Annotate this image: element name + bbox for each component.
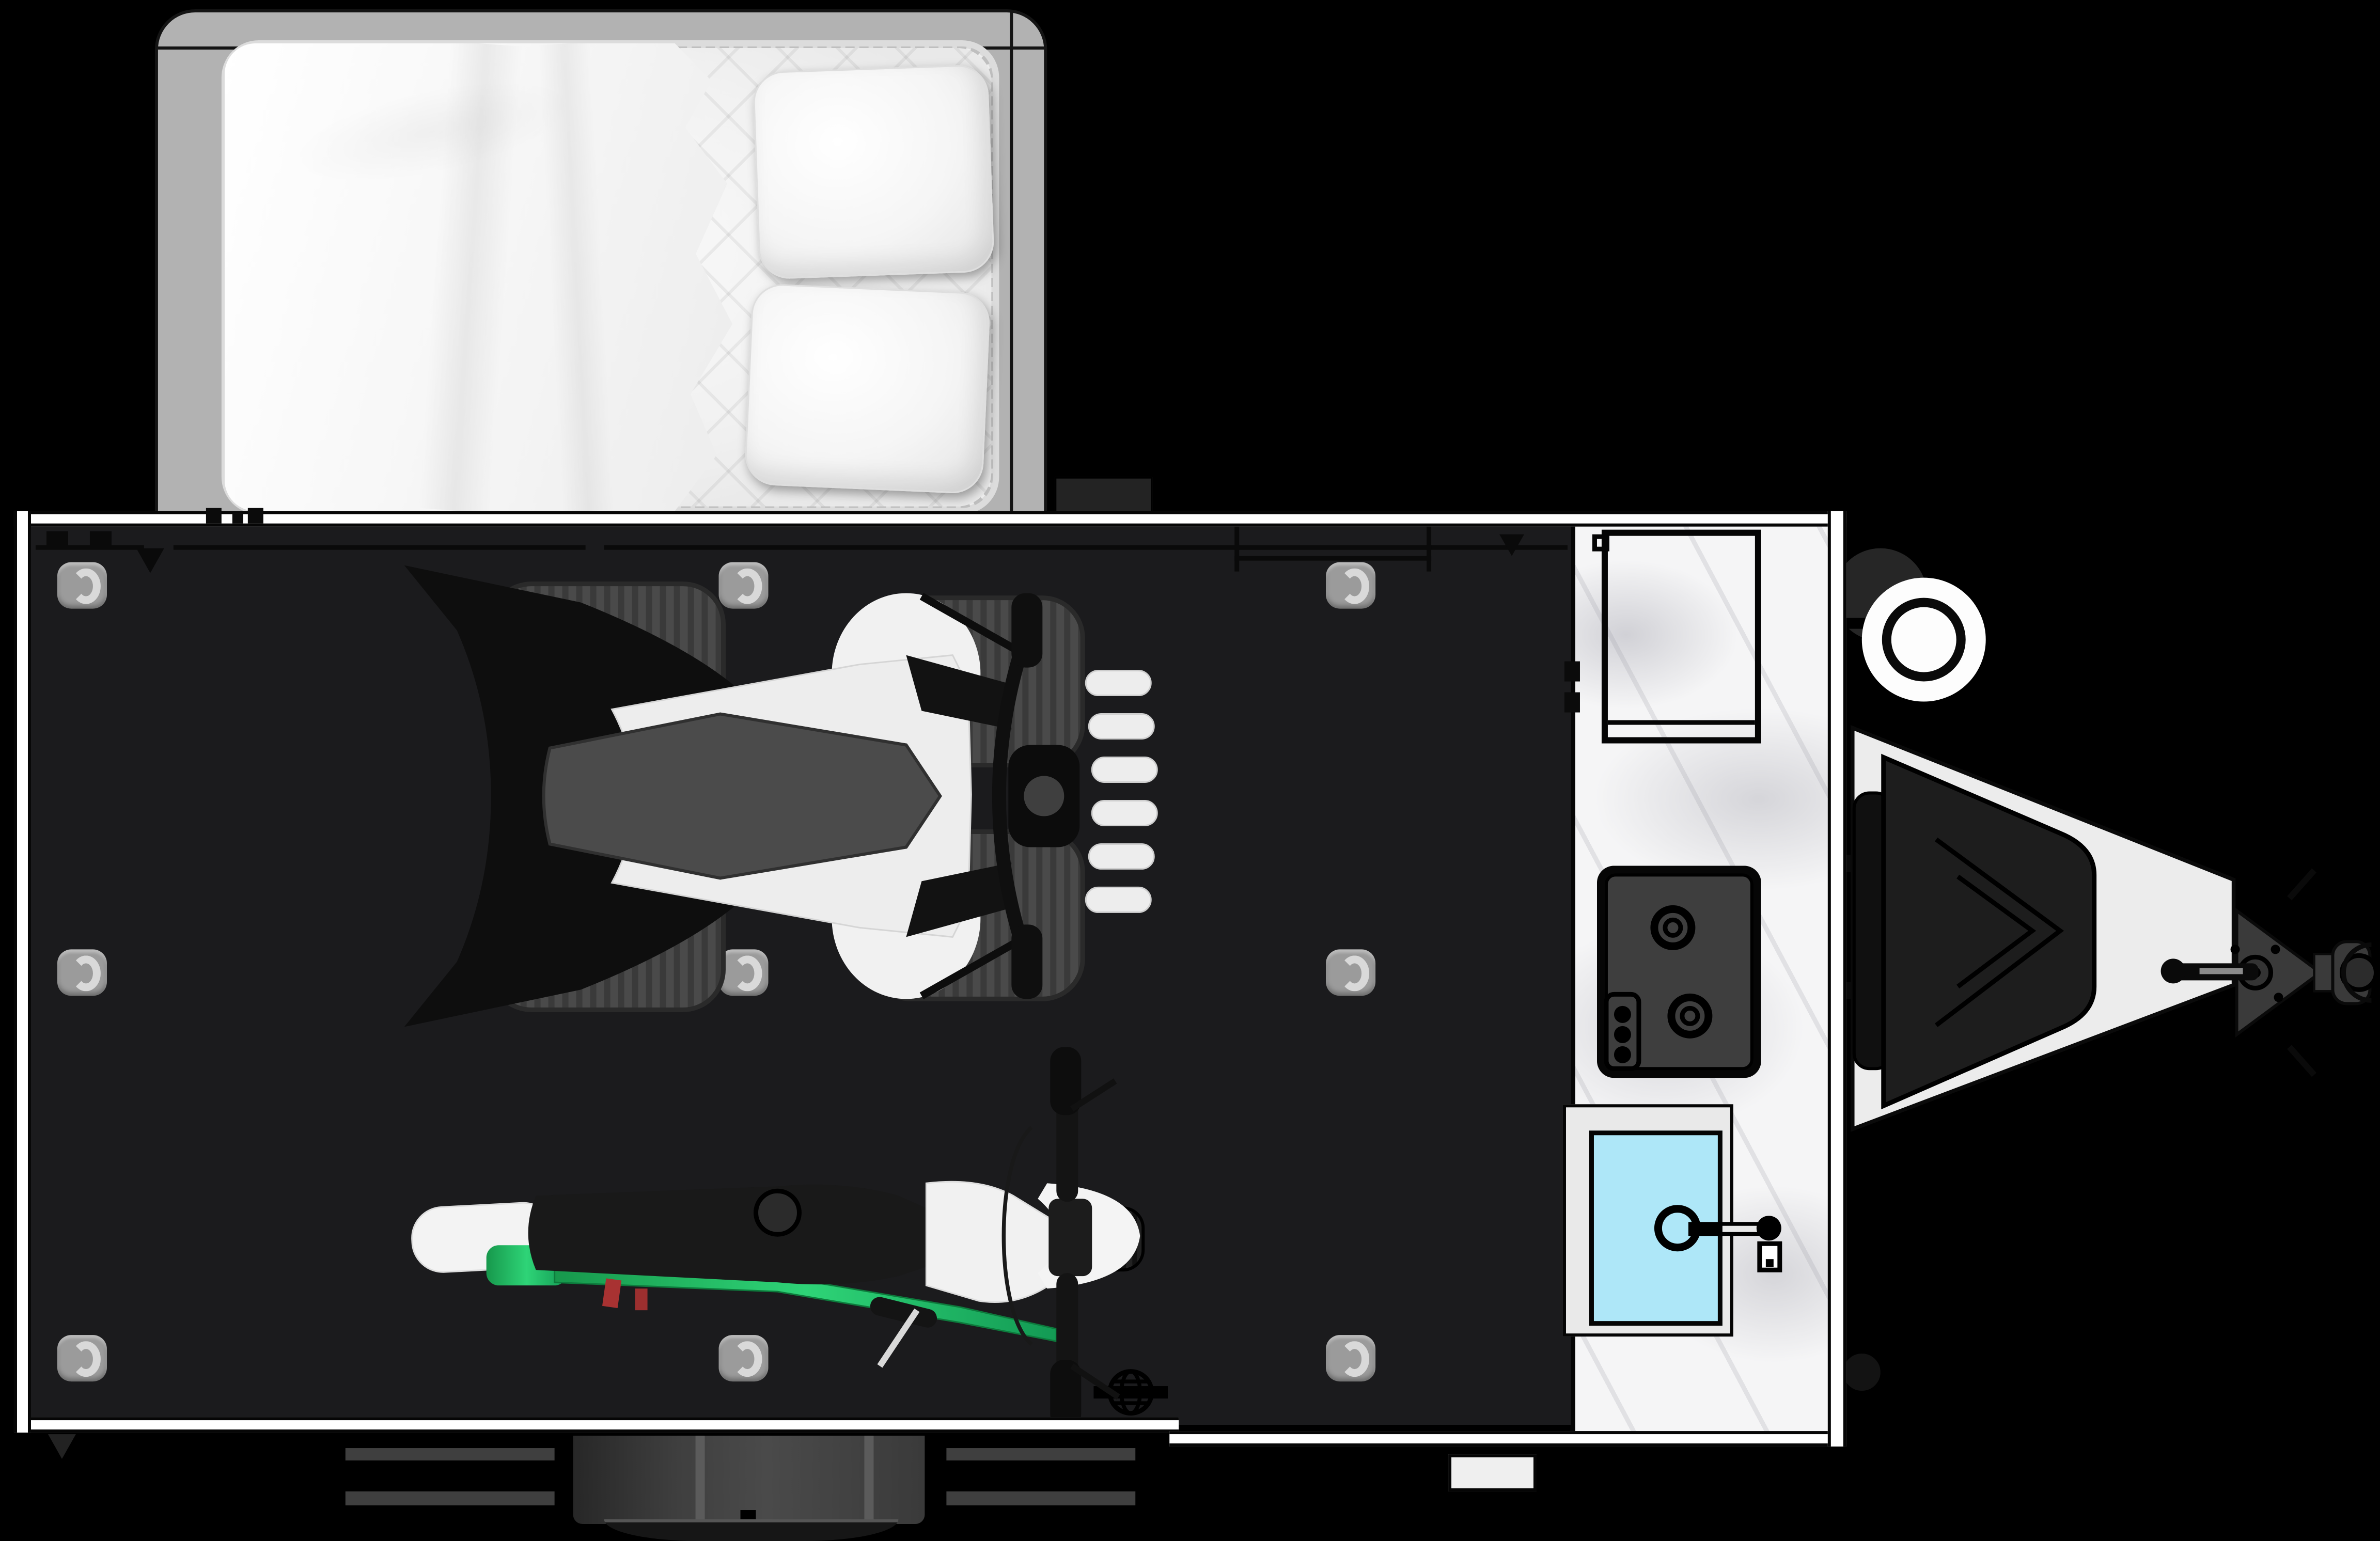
- platform-hinge: [206, 508, 222, 524]
- step-lip: [604, 1519, 899, 1541]
- atv-front-rack: [1086, 671, 1157, 913]
- atv-gauge: [1024, 776, 1064, 816]
- entry-step: [573, 1436, 925, 1524]
- stabilizer-bar: [346, 1448, 555, 1460]
- ramp-hinge: [90, 531, 112, 545]
- jack-crank-knob: [2161, 958, 2186, 983]
- stabilizer-bar: [946, 1491, 1135, 1505]
- propane-connector: [1845, 618, 1865, 629]
- blanket: [225, 43, 748, 511]
- jack-crank-shaft: [2200, 968, 2243, 974]
- floorplan-stage: [0, 0, 2379, 1541]
- pillow: [753, 64, 995, 280]
- ramp-door-wall: [14, 511, 31, 1433]
- ramp-hinge: [46, 531, 68, 545]
- cabinet-hinge-icon: [1564, 693, 1580, 713]
- platform-hinge: [248, 508, 263, 524]
- tie-down-ring: [1326, 1335, 1375, 1381]
- step-rail: [864, 1436, 873, 1524]
- jack-bolt: [2231, 945, 2240, 954]
- kitchen-side-wall: [1169, 1431, 1845, 1446]
- stabilizer-bar: [346, 1491, 555, 1505]
- tie-down-ring: [57, 1335, 107, 1381]
- cooktop-knob: [1614, 1026, 1631, 1043]
- front-cap-wall: [1828, 511, 1846, 1446]
- trailer-wheel: [1842, 1352, 1882, 1392]
- cooktop-knob: [1614, 1006, 1631, 1023]
- blanket-fold: [282, 61, 581, 203]
- bike-fuel-cap: [756, 1191, 800, 1234]
- tie-down-ring: [1326, 949, 1375, 996]
- stabilizer-bar: [946, 1448, 1135, 1460]
- tongue-assembly: [1828, 511, 2379, 1471]
- cooktop: [1597, 866, 1761, 1078]
- step-rail: [696, 1436, 705, 1524]
- wall-seam: [174, 545, 586, 549]
- wall-bracket-icon: [136, 548, 164, 573]
- rear-side-wall: [14, 1417, 1179, 1433]
- exterior-hatch-box: [1448, 1454, 1537, 1491]
- tie-down-ring: [57, 949, 107, 996]
- wall-bracket-icon: [1499, 534, 1524, 556]
- pillow: [744, 283, 991, 495]
- propane-tank-icon: [1862, 578, 1986, 702]
- tie-down-ring: [1326, 562, 1375, 609]
- cooktop-knob: [1614, 1046, 1631, 1063]
- bike-red-part: [635, 1288, 648, 1310]
- sink-faucet: [1642, 1185, 1784, 1281]
- jack-bolt: [2271, 945, 2280, 954]
- front-wall: [14, 511, 1846, 527]
- overhead-cabinet: [1602, 530, 1761, 744]
- atv: [395, 562, 1159, 1030]
- tie-down-ring: [57, 562, 107, 609]
- cabinet-hinge-icon: [1592, 534, 1609, 552]
- propane-connector: [1845, 651, 1865, 662]
- rear-jack-foot: [48, 1434, 76, 1459]
- bike-triple-clamp: [1048, 1199, 1092, 1276]
- atv-grip: [1011, 924, 1042, 999]
- atv-grip: [1011, 593, 1042, 668]
- platform-hinge: [232, 513, 243, 524]
- cabinet-door-seam: [1608, 720, 1755, 734]
- bike-seat-tank: [528, 1185, 927, 1284]
- wall-seam: [36, 545, 144, 549]
- dirt-bike: [406, 1034, 1150, 1437]
- platform-seam: [1010, 12, 1013, 522]
- jack-bolt: [2274, 993, 2283, 1002]
- cabinet-hinge-icon: [1564, 662, 1580, 682]
